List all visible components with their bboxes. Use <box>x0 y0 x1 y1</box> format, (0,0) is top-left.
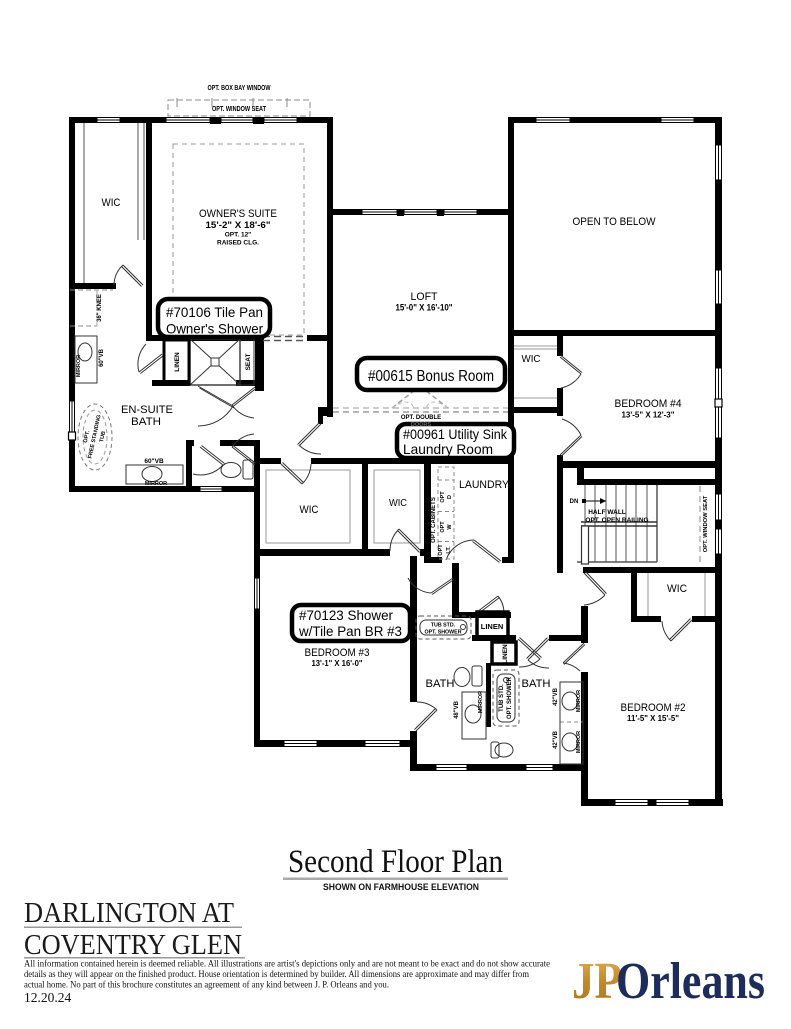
svg-text:48"VB: 48"VB <box>454 700 460 719</box>
svg-text:OWNER'S SUITE: OWNER'S SUITE <box>199 208 277 220</box>
svg-text:WIC: WIC <box>102 197 121 209</box>
svg-text:WIC: WIC <box>300 504 319 516</box>
svg-text:OPT: OPT <box>440 491 446 503</box>
svg-text:LAUNDRY: LAUNDRY <box>459 479 510 491</box>
svg-text:11'-5" X 15'-5": 11'-5" X 15'-5" <box>627 713 679 723</box>
svg-text:LINEN: LINEN <box>481 622 504 631</box>
svg-text:OPT. OPEN RAILING: OPT. OPEN RAILING <box>585 517 648 524</box>
svg-text:OPT: OPT <box>438 544 444 556</box>
svg-text:LINEN: LINEN <box>502 644 509 664</box>
svg-text:36" KNEE: 36" KNEE <box>97 294 103 322</box>
svg-text:MIRROR: MIRROR <box>76 355 82 377</box>
svg-text:DARLINGTON AT: DARLINGTON AT <box>24 898 234 929</box>
svg-text:OPT: OPT <box>440 521 446 533</box>
svg-text:LINEN: LINEN <box>174 352 181 372</box>
svg-text:15'-2" X 18'-6": 15'-2" X 18'-6" <box>206 220 271 230</box>
svg-text:Second Floor Plan: Second Floor Plan <box>288 844 503 880</box>
svg-text:Orleans: Orleans <box>616 953 765 1010</box>
svg-text:13'-1" X 16'-0": 13'-1" X 16'-0" <box>312 658 363 668</box>
svg-text:RAISED CLG.: RAISED CLG. <box>217 240 259 247</box>
svg-text:BATH: BATH <box>522 678 551 690</box>
svg-text:DOORS: DOORS <box>411 422 432 428</box>
svg-text:OPT. CABINETS: OPT. CABINETS <box>431 497 437 543</box>
svg-text:LOFT: LOFT <box>411 291 438 303</box>
svg-text:LT.: LT. <box>446 546 452 554</box>
svg-text:OPEN TO BELOW: OPEN TO BELOW <box>573 216 656 228</box>
svg-text:#70123 Shower: #70123 Shower <box>299 607 393 623</box>
svg-text:D: D <box>447 495 453 499</box>
svg-text:w/Tile Pan BR #3: w/Tile Pan BR #3 <box>298 623 402 639</box>
svg-text:WIC: WIC <box>667 583 687 595</box>
svg-text:JP: JP <box>572 953 622 1010</box>
svg-text:60"VB: 60"VB <box>144 458 164 465</box>
svg-text:SEAT: SEAT <box>245 354 252 371</box>
svg-text:42"VB: 42"VB <box>553 730 559 749</box>
svg-text:Owner's Shower: Owner's Shower <box>166 321 263 337</box>
svg-text:#00961 Utility Sink: #00961 Utility Sink <box>403 426 508 442</box>
svg-text:TUB STD.: TUB STD. <box>431 623 456 629</box>
svg-text:OPT. SHOWER: OPT. SHOWER <box>424 630 461 636</box>
svg-text:WIC: WIC <box>389 497 407 509</box>
svg-text:COVENTRY GLEN: COVENTRY GLEN <box>24 930 242 961</box>
svg-text:OPT. BOX BAY WINDOW: OPT. BOX BAY WINDOW <box>208 85 271 92</box>
svg-text:DN: DN <box>570 499 579 505</box>
svg-text:actual home. No part of this b: actual home. No part of this brochure co… <box>24 980 389 990</box>
svg-text:OPT. WINDOW SEAT: OPT. WINDOW SEAT <box>212 106 267 113</box>
svg-text:details as they will appear on: details as they will appear on the finis… <box>24 969 529 979</box>
svg-text:TUB STD.: TUB STD. <box>499 684 505 712</box>
svg-text:Laundry Room: Laundry Room <box>403 441 493 457</box>
svg-text:42"VB: 42"VB <box>553 687 559 706</box>
svg-text:OPT. WINDOW SEAT: OPT. WINDOW SEAT <box>703 495 709 552</box>
svg-text:W: W <box>447 524 453 530</box>
svg-text:All information contained here: All information contained herein is deem… <box>24 959 550 969</box>
svg-text:OPT. SHOWER: OPT. SHOWER <box>507 676 513 719</box>
svg-text:15'-0" X 16'-10": 15'-0" X 16'-10" <box>396 303 453 313</box>
svg-text:BATH: BATH <box>426 678 455 690</box>
svg-text:13'-5" X 12'-3": 13'-5" X 12'-3" <box>622 410 675 420</box>
svg-text:OPT. DOUBLE: OPT. DOUBLE <box>401 415 441 421</box>
svg-text:60"VB: 60"VB <box>99 348 105 367</box>
svg-text:MIRROR: MIRROR <box>576 731 582 753</box>
svg-text:MIRROR: MIRROR <box>576 690 582 712</box>
svg-text:#00615 Bonus Room: #00615 Bonus Room <box>368 368 494 385</box>
svg-text:#70106 Tile Pan: #70106 Tile Pan <box>166 304 263 320</box>
svg-text:OPT. 12": OPT. 12" <box>225 232 252 239</box>
svg-text:MIRROR: MIRROR <box>478 691 484 713</box>
svg-text:EN-SUITE: EN-SUITE <box>121 404 173 416</box>
svg-text:WIC: WIC <box>522 353 541 365</box>
svg-text:BEDROOM #4: BEDROOM #4 <box>615 398 682 410</box>
svg-text:BATH: BATH <box>131 416 161 428</box>
svg-text:HALF WALL: HALF WALL <box>588 509 626 516</box>
svg-text:12.20.24: 12.20.24 <box>24 990 72 1005</box>
svg-text:MIRROR: MIRROR <box>145 481 167 487</box>
svg-text:SHOWN ON FARMHOUSE ELEVATION: SHOWN ON FARMHOUSE ELEVATION <box>323 882 479 893</box>
